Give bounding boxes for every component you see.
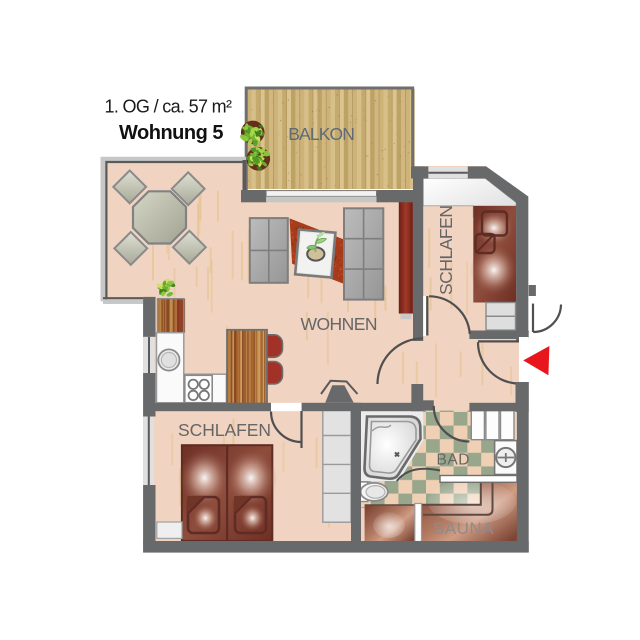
svg-text:1. OG / ca. 57 m²: 1. OG / ca. 57 m² [105, 97, 233, 117]
svg-text:SAUNA: SAUNA [433, 519, 494, 538]
svg-text:WOHNEN: WOHNEN [301, 314, 378, 334]
svg-text:Wohnung 5: Wohnung 5 [119, 122, 224, 144]
svg-text:BAD: BAD [437, 452, 470, 469]
svg-text:SCHLAFEN: SCHLAFEN [178, 420, 271, 440]
svg-text:BALKON: BALKON [288, 124, 356, 144]
svg-text:SCHLAFEN: SCHLAFEN [436, 205, 456, 295]
